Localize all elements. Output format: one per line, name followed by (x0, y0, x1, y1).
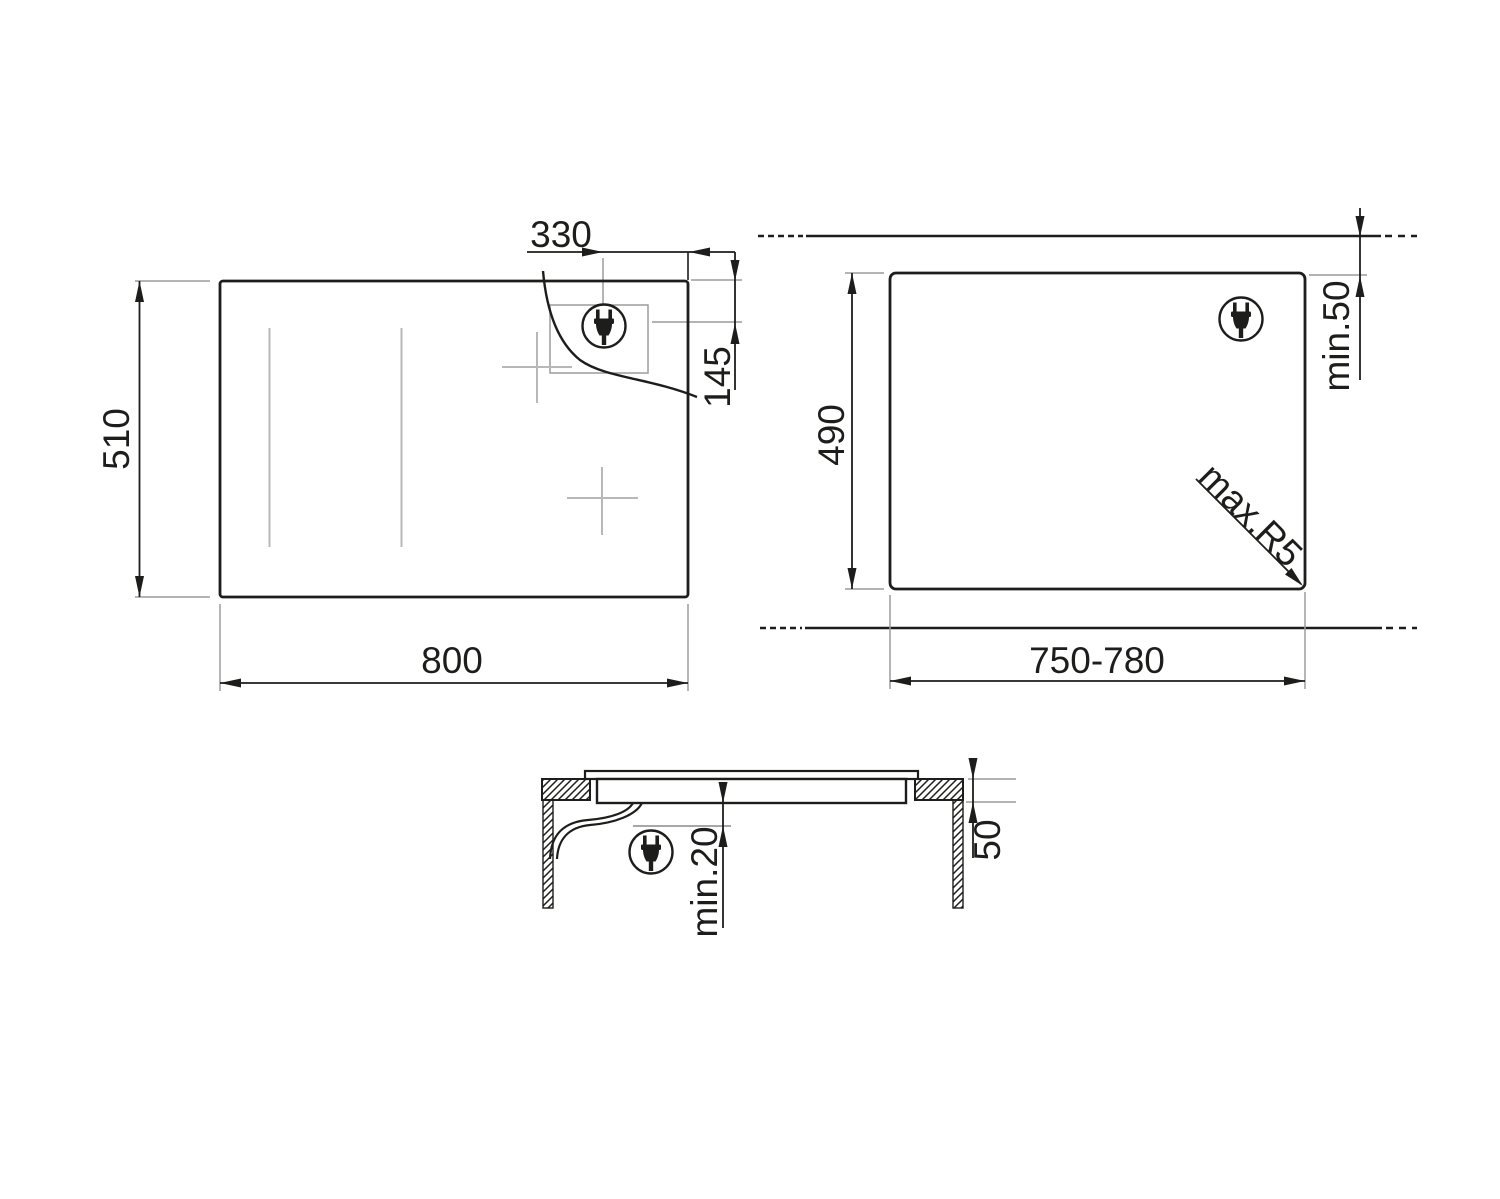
hob-body-section (597, 779, 906, 803)
cabinet-panel-left (543, 800, 553, 908)
cutout-depth-label: 490 (811, 404, 852, 466)
view-hob-top: 510 800 330 145 (96, 214, 742, 691)
worktop-section-right (915, 779, 963, 800)
zone-center-cross (567, 467, 638, 535)
worktop-thickness-label: 50 (967, 819, 1008, 860)
arrowhead (731, 260, 740, 281)
arrowhead (689, 248, 710, 257)
clearance-below-label: min.20 (684, 826, 725, 937)
plug-depth-label: 145 (697, 346, 738, 408)
arrowhead (1284, 677, 1305, 686)
power-plug-icon (630, 831, 673, 874)
arrowhead (731, 323, 740, 344)
arrowhead (220, 679, 241, 688)
arrowhead (848, 568, 857, 589)
hob-depth-label: 510 (96, 408, 137, 470)
arrowhead (848, 273, 857, 294)
hob-glass-section (585, 771, 918, 779)
power-plug-icon (1220, 298, 1263, 341)
hob-width-label: 800 (421, 640, 483, 681)
arrowhead (969, 758, 978, 779)
corner-radius-label: max.R5 (1191, 456, 1310, 575)
cabinet-panel-right (953, 800, 963, 908)
arrowhead (667, 679, 688, 688)
worktop-section-left (542, 779, 590, 800)
power-cable (550, 803, 642, 859)
arrowhead (135, 576, 144, 597)
rear-clearance-label: min.50 (1316, 280, 1357, 391)
arrowhead (890, 677, 911, 686)
view-section: min.20 50 (542, 758, 1016, 938)
cutout-width-label: 750-780 (1029, 640, 1165, 681)
zone-center-cross (502, 332, 572, 403)
power-plug-icon (583, 305, 626, 348)
arrowhead (135, 281, 144, 302)
arrowhead (1356, 216, 1365, 237)
plug-offset-label: 330 (530, 214, 592, 255)
installation-drawing: 510 800 330 145 (0, 0, 1500, 1199)
technical-drawing-page: 510 800 330 145 (0, 0, 1500, 1199)
view-cutout: 490 750-780 min.50 max.R5 (758, 208, 1417, 689)
